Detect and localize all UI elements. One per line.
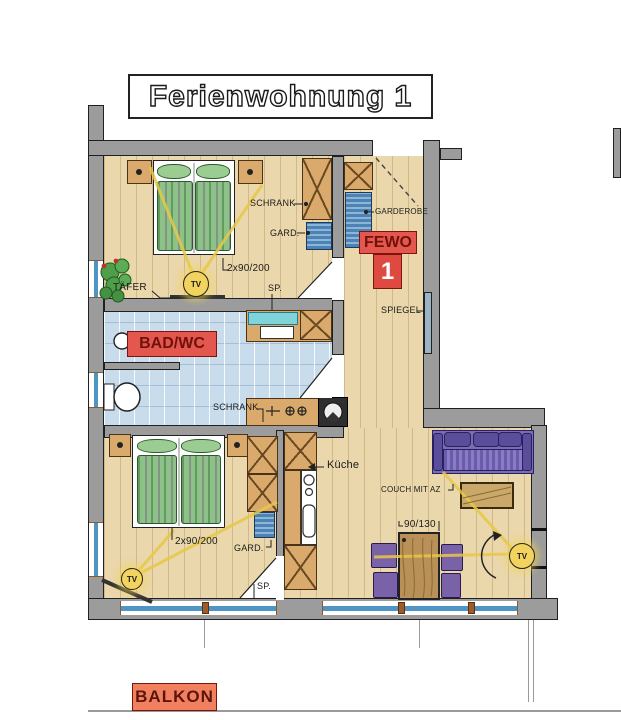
page-title: Ferienwohnung 1	[128, 74, 433, 119]
wardrobe-cabinet	[302, 158, 332, 220]
fewo-number-text: 1	[381, 258, 394, 286]
bedroom1-window	[89, 260, 103, 298]
bedroom2-side-window	[89, 522, 103, 577]
couch-back-cushion	[444, 432, 471, 447]
couch-back-cushion	[473, 432, 500, 447]
taefer-label: TÄFER	[113, 282, 147, 293]
nightstand	[227, 434, 248, 457]
bath-name-plate: BAD/WC	[127, 331, 217, 357]
top-wall	[88, 140, 373, 156]
couch-seat	[443, 449, 523, 471]
nightstand	[238, 160, 263, 184]
floor-plan: TV TV TV SCHRANK GARD. 2x90/200 SP. TÄFE…	[0, 0, 621, 720]
garderobe-label: GARDEROBE	[375, 207, 428, 216]
balkon-plate: BALKON	[132, 683, 217, 711]
bedroom2-bedsize-label: 2x90/200	[175, 536, 218, 547]
balkon-text: BALKON	[135, 687, 214, 707]
table-size-label: 90/130	[404, 519, 436, 530]
entry-door-opening	[373, 141, 423, 156]
kueche-label: Küche	[327, 459, 359, 471]
couch-armrest	[433, 433, 443, 471]
wc-partition	[104, 362, 180, 370]
balcony-line	[204, 620, 205, 648]
duvet	[195, 181, 231, 251]
balcony-line	[419, 620, 420, 648]
page-title-text: Ferienwohnung 1	[149, 80, 412, 114]
wall-tick	[531, 528, 547, 531]
tv-label: TV	[191, 280, 201, 289]
chair	[441, 544, 463, 571]
chair	[441, 573, 461, 598]
spiegel-label: SPIEGEL	[381, 305, 421, 315]
bedroom1-door-opening	[332, 258, 344, 300]
window-divider	[468, 602, 475, 614]
coffee-table	[460, 482, 514, 509]
couch-armrest	[522, 433, 532, 471]
balcony-line	[533, 620, 534, 702]
bath-door-opening	[332, 355, 344, 398]
bathtub-counter	[248, 312, 298, 325]
entry-stub-wall	[440, 148, 462, 160]
hall-left-wall-b	[332, 300, 344, 355]
bedroom2-gard-label: GARD.	[234, 543, 264, 553]
tv-icon: TV	[183, 271, 209, 297]
bedroom1-gard-label: GARD.	[270, 228, 300, 238]
couch-back-cushion	[498, 432, 522, 447]
bedroom1-schrank-label: SCHRANK	[250, 198, 295, 208]
balcony-window-right	[322, 601, 518, 615]
bath-corner-cabinet	[300, 310, 332, 340]
bath-schrank-label: SCHRANK	[213, 402, 258, 412]
tv-label: TV	[127, 575, 137, 584]
hall-left-wall-a	[332, 156, 344, 258]
duvet	[181, 455, 221, 524]
hall-right-wall	[423, 140, 440, 428]
nightstand	[127, 160, 152, 184]
wall-tick	[531, 566, 547, 569]
tv-icon: TV	[121, 568, 143, 590]
basin	[260, 326, 294, 339]
kitchen-tall-cabinet	[284, 432, 317, 470]
living-top-wall	[423, 408, 545, 428]
bedroom1-bedsize-label: 2x90/200	[227, 263, 270, 274]
pillow	[196, 164, 230, 179]
chair	[371, 543, 397, 568]
balcony-line	[528, 620, 529, 702]
right-edge-fragment-wall	[613, 128, 621, 178]
hall-cabinet	[344, 162, 373, 190]
dining-table	[398, 532, 440, 600]
fewo-text: FEWO	[364, 234, 412, 252]
tv-icon: TV	[509, 543, 535, 569]
kitchenette-strip	[301, 470, 317, 545]
fewo-number-plate: 1	[373, 254, 402, 289]
kitchen-tall-cabinet	[284, 545, 317, 590]
pillow	[157, 164, 191, 179]
balcony-window-left	[120, 601, 277, 615]
pillow	[137, 439, 177, 453]
bath-name-text: BAD/WC	[139, 335, 205, 353]
window-divider	[398, 602, 405, 614]
bedroom2-sp-label: SP.	[257, 581, 271, 591]
window-divider	[202, 602, 209, 614]
chair	[373, 572, 398, 598]
duvet	[157, 181, 193, 251]
wardrobe-cabinet	[247, 474, 278, 512]
coat-rack	[254, 512, 275, 538]
mirror	[424, 292, 432, 354]
fewo-plate: FEWO	[359, 231, 417, 254]
washing-machine-icon	[318, 397, 348, 427]
pillow	[181, 439, 221, 453]
bedroom2-door-opening	[276, 556, 284, 600]
tv-label: TV	[517, 552, 527, 561]
coat-rack	[306, 222, 332, 250]
bath-window	[89, 372, 103, 408]
couch-label: COUCH MIT AZ	[381, 485, 441, 494]
kitchen-counter	[284, 470, 301, 545]
bedroom1-sp-label: SP.	[268, 283, 282, 293]
wardrobe-cabinet	[247, 436, 278, 474]
duvet	[137, 455, 177, 524]
nightstand	[109, 434, 131, 457]
